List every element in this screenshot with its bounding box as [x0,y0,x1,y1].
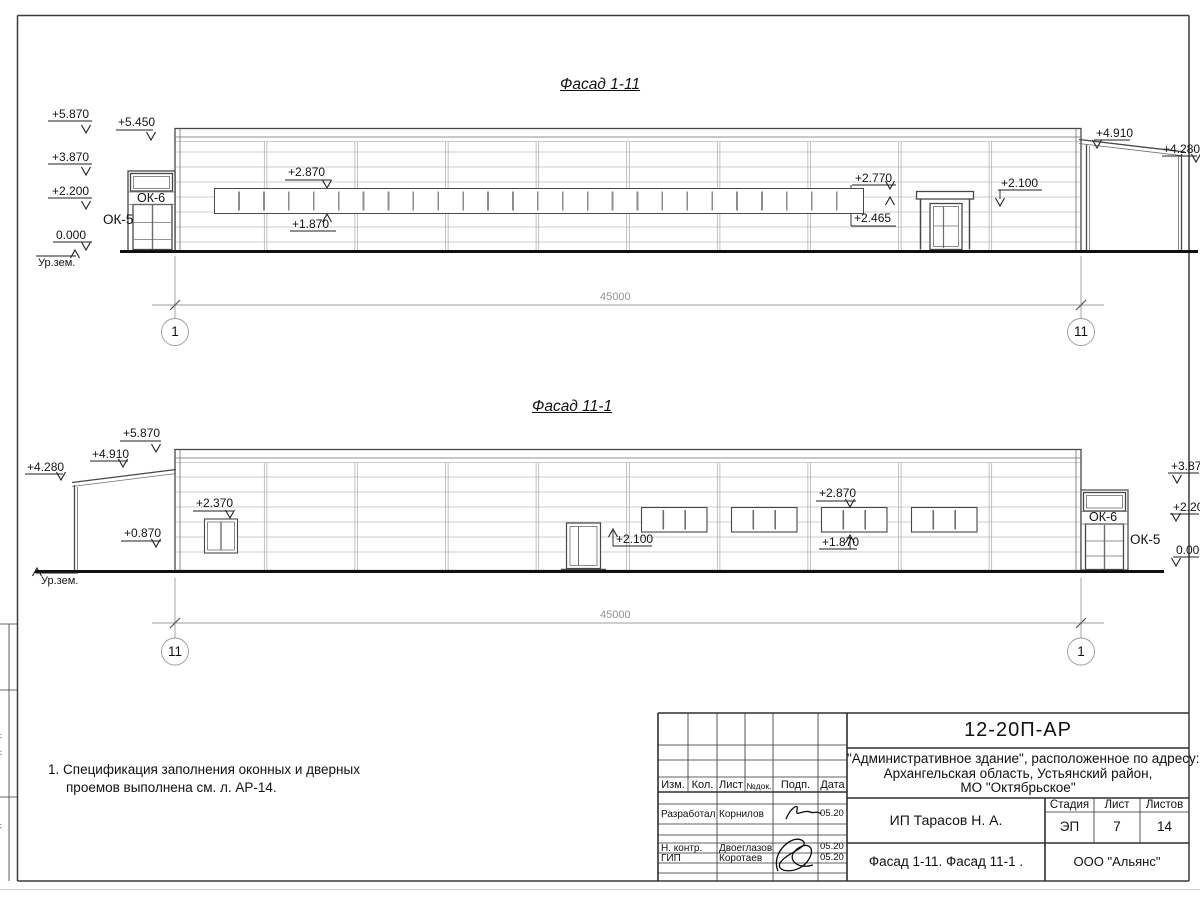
facade2-axis-1: 1 [1066,644,1096,659]
titleblock-col-izm: Изм. [658,779,688,791]
facade1-window-band [214,188,864,214]
titleblock-r1-name: Корнилов [719,809,764,820]
titleblock-project-line1: "Административное здание", расположенное… [847,751,1189,766]
facade2-mark-right-2200: +2.200 [1173,500,1200,514]
facade2-mark-right-3870: +3.870 [1171,459,1200,473]
facade2-mark-4910: +4.910 [92,447,129,461]
titleblock-col-kol: Кол. [688,779,717,791]
titleblock-code: 12-20П-АР [847,719,1189,742]
facade1-axis-11: 11 [1066,324,1096,339]
titleblock-stage-value: ЭП [1045,819,1094,834]
signatures [776,807,821,871]
note-line1: 1. Спецификация заполнения оконных и две… [48,762,360,777]
side-strip-label-2: Подп. и дата [0,690,2,797]
titleblock-r3-role: ГИП [661,853,681,864]
facade2-mark-4280: +4.280 [27,460,64,474]
titleblock-stage-label: Стадия [1045,799,1094,811]
facade1-mark-5870: +5.870 [52,107,89,121]
facade2-mark-0870: +0.870 [124,526,161,540]
titleblock-client: ИП Тарасов Н. А. [847,812,1045,828]
titleblock-col-podp: Подп. [773,779,818,791]
drawing-sheet: Фасад 1-11 +5.870 +5.450 +3.870 +2.200 0… [0,0,1200,900]
facade1-mark-door: +2.100 [1001,176,1038,190]
titleblock-r1-role: Разработал [661,809,715,820]
facade1-mark-4910: +4.910 [1096,126,1133,140]
facade1-mark-band-top: +2.870 [288,165,325,179]
facade1-mark-2200: +2.200 [52,184,89,198]
facade1-ground-label: Ур.зем. [38,257,75,269]
facade1-title: Фасад 1-11 [560,76,640,94]
titleblock-sheets-value: 14 [1140,819,1189,834]
side-strip-label-1: Взам. инв. № [0,624,2,690]
titleblock-project-line3: МО "Октябрьское" [847,780,1189,795]
facade2-mark-band-top: +2.870 [819,486,856,500]
facade2-dim-45000: 45000 [600,609,631,621]
titleblock-sheet-value: 7 [1094,819,1140,834]
facade2-ok6-label: ОК-6 [1089,510,1117,524]
titleblock-sheets-label: Листов [1140,799,1189,811]
facade2-mark-door: +2.100 [616,532,653,546]
titleblock-r3-name: Коротаев [719,853,762,864]
facade2-mark-right-0000: 0.000 [1176,543,1200,557]
facade2-ground-label: Ур.зем. [41,575,78,587]
facade2-title: Фасад 11-1 [532,398,612,416]
facade1-mark-3870: +3.870 [52,150,89,164]
titleblock-r2-date: 05.20 [820,841,844,852]
facade2-mark-2370: +2.370 [196,496,233,510]
facade2-ok5-label: ОК-5 [1130,532,1160,547]
facade2-axis-11: 11 [160,644,190,659]
titleblock-r3-date: 05.20 [820,852,844,863]
facade2-mark-band-bottom: +1.870 [822,535,859,549]
facade1-mark-4280: +4.280 [1163,142,1200,156]
note-line2: проемов выполнена см. л. АР-14. [66,780,277,795]
titleblock-col-ndok: №док. [745,781,773,791]
titleblock-sheet-label: Лист [1094,799,1140,811]
facade1-dim-45000: 45000 [600,291,631,303]
facade1-mark-2465: +2.465 [854,211,891,225]
titleblock-project-line2: Архангельская область, Устьянский район, [847,766,1189,781]
facade1-axis-1: 1 [160,324,190,339]
facade1-mark-2770: +2.770 [855,171,892,185]
facade2-mark-5870: +5.870 [123,426,160,440]
titleblock-company: ООО "Альянс" [1045,854,1189,869]
side-strip-label-3: Инв. № подл. [0,797,2,881]
titleblock-sheet-title: Фасад 1-11. Фасад 11-1 . [847,854,1045,869]
titleblock-r1-date: 05.20 [820,808,844,819]
facade1-mark-0000: 0.000 [56,228,86,242]
dimension-lines [152,256,1104,665]
facade1-ok6-label: ОК-6 [137,191,165,205]
dimension-ticks [170,300,1086,628]
titleblock-col-data: Дата [818,779,847,791]
facade1-ok5-label: ОК-5 [103,212,133,227]
titleblock-col-list: Лист [717,779,745,791]
facade1-mark-5450: +5.450 [118,115,155,129]
frame-side-strip [0,624,18,881]
facade1-mark-band-bottom: +1.870 [292,217,329,231]
